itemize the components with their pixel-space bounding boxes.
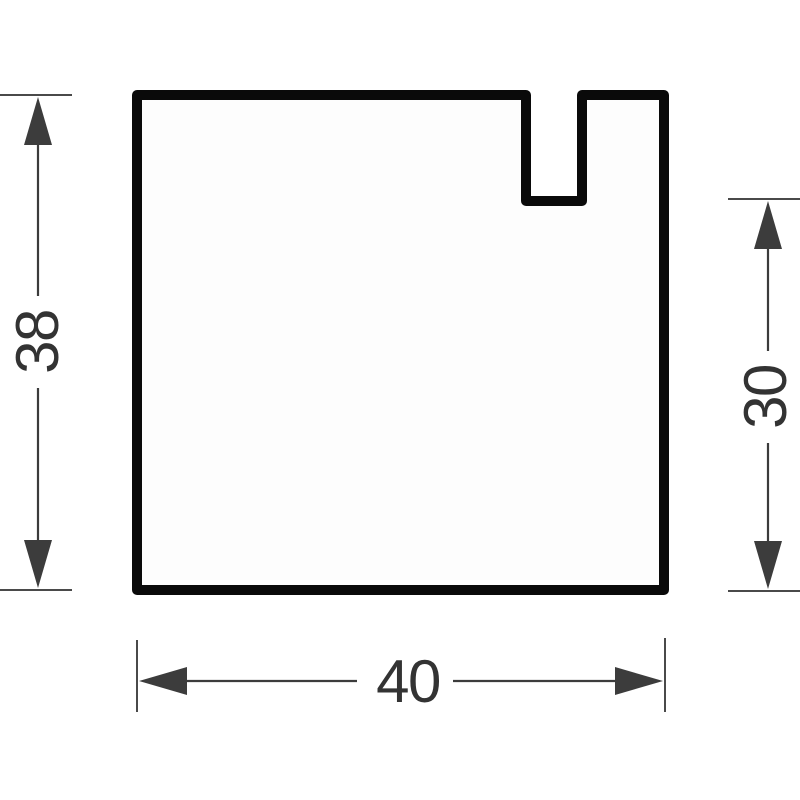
dimension-overall-width: 40 bbox=[137, 638, 665, 715]
arrowhead-down-icon bbox=[754, 541, 782, 589]
technical-drawing-canvas: 38 30 40 bbox=[0, 0, 800, 800]
arrowhead-right-icon bbox=[615, 667, 663, 695]
arrowhead-up-icon bbox=[754, 201, 782, 249]
arrowhead-down-icon bbox=[24, 540, 52, 588]
arrowhead-left-icon bbox=[139, 667, 187, 695]
dimension-value-slot-floor-height: 30 bbox=[732, 365, 799, 429]
dimension-overall-height: 38 bbox=[0, 95, 72, 590]
dimension-value-overall-height: 38 bbox=[4, 310, 71, 374]
part-outline bbox=[137, 95, 664, 590]
dimension-value-overall-width: 40 bbox=[376, 648, 440, 715]
arrowhead-up-icon bbox=[24, 97, 52, 145]
dimension-slot-floor-height: 30 bbox=[728, 199, 800, 591]
